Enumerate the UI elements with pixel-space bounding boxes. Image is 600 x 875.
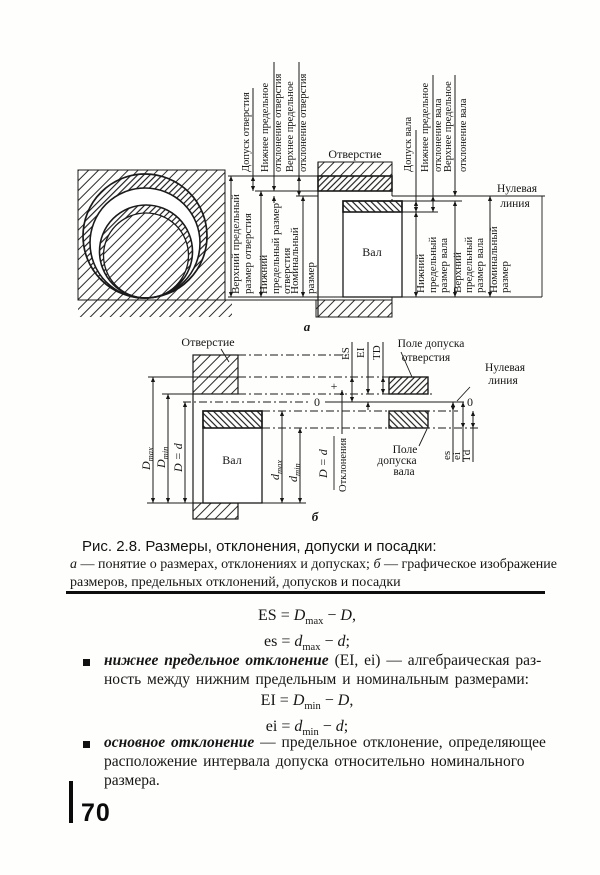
bullet-2-line-3: размера. — [104, 772, 160, 790]
label-hole-lower-dev-1: Нижнее предельное — [260, 83, 271, 172]
shaft-label: Вал — [362, 245, 381, 259]
book-page: Допуск отверстия Нижнее предельное откло… — [0, 0, 600, 875]
hole-tolerance-strip — [318, 176, 392, 191]
shaft-label: Вал — [222, 453, 241, 467]
hole-wall — [318, 162, 392, 176]
dim-D-max: Dmax — [139, 447, 155, 471]
label-shaft-upper-dev-2: отклонение вала — [458, 98, 469, 172]
fig-a-side-view — [318, 162, 402, 317]
formula-block-upper-deviation: ES = Dmax − D, es = dmax − d; — [70, 606, 544, 658]
hole-field-label-1: Поле допуска — [398, 338, 465, 350]
label-hole-upper-dev-2: отклонение отверстия — [298, 74, 309, 172]
dim-D-min: Dmin — [154, 447, 170, 469]
null-line-label-1: Нулевая — [485, 362, 526, 374]
legend-b: б — [373, 557, 380, 572]
label-hole-tolerance: Допуск отверстия — [241, 92, 252, 172]
margin-mark — [69, 781, 73, 823]
null-line-label-2: линия — [488, 375, 518, 387]
label-shaft-lower-dev-1: Нижнее предельное — [420, 83, 431, 172]
hole-tolerance-field — [389, 377, 428, 394]
bullet-2-line-1: основное отклонение — предельное отклоне… — [104, 734, 546, 752]
null-line-label-2: линия — [500, 198, 530, 210]
shaft-tolerance-field — [389, 411, 428, 428]
figure-legend-line-2: размеров, предельных отклонений, допуско… — [70, 575, 401, 591]
zero-left: 0 — [314, 395, 320, 409]
hole-field-label-2: отверстия — [402, 352, 451, 364]
dim-Td: Td — [461, 449, 473, 462]
label-hole-upper-size-1: Верхний предельный — [230, 194, 242, 294]
bottom-block — [193, 503, 238, 519]
figure-2-8-diagrams: Допуск отверстия Нижнее предельное откло… — [0, 0, 600, 535]
label-shaft-lower-size-3: размер вала — [438, 238, 450, 293]
dim-d-max: dmax — [268, 460, 284, 480]
label-hole-upper-size-2: размер отверстия — [242, 213, 254, 294]
dim-ES: ES — [340, 347, 352, 360]
null-line-label-1: Нулевая — [497, 183, 538, 195]
label-shaft-upper-size-3: размер вала — [474, 238, 486, 293]
bullet-1-line-1: нижнее предельное отклонение (EI, ei) — … — [104, 652, 541, 670]
dim-D-equals-d: D = d — [171, 442, 185, 473]
label-hole-lower-size-1: Нижний — [258, 255, 270, 294]
dim-EI: EI — [355, 347, 367, 358]
label-nominal-size-2: размер — [305, 262, 317, 294]
bullet-2-line-2: расположение интервала допуска относител… — [104, 753, 524, 771]
figure-b: Отверстие Вал Dmax Dmin D = d dmax dmin … — [139, 335, 526, 524]
label-shaft-upper-dev-1: Верхнее предельное — [443, 81, 454, 172]
axis-label-numerator: D = d — [316, 448, 330, 479]
legend-a: а — [70, 557, 77, 572]
subfigure-a-tag: а — [304, 319, 311, 334]
label-nominal-size-shaft-2: размер — [499, 261, 511, 293]
section-divider — [66, 591, 545, 594]
shaft-tolerance-strip — [343, 201, 402, 212]
label-shaft-tolerance: Допуск вала — [403, 117, 414, 172]
fig-b-geometry — [193, 349, 470, 519]
formula-ES: ES = Dmax − D, — [70, 606, 544, 632]
shaft-tolerance-strip — [203, 411, 262, 428]
hole-block — [193, 355, 238, 394]
plus-sign: + — [331, 379, 338, 393]
page-number: 70 — [81, 799, 111, 828]
figure-legend-line-1: а — понятие о размерах, отклонениях и до… — [70, 557, 557, 573]
bullet-square-icon — [83, 741, 90, 748]
label-hole-lower-dev-2: отклонение отверстия — [273, 74, 284, 172]
bullet-square-icon — [83, 659, 90, 666]
bullet-1-line-2: ность между нижним предельным и номиналь… — [104, 671, 529, 689]
formula-EI: EI = Dmin − D, — [70, 691, 544, 717]
figure-a: Допуск отверстия Нижнее предельное откло… — [78, 62, 545, 334]
label-hole-upper-dev-1: Верхнее предельное — [285, 81, 296, 172]
hole-label: Отверстие — [328, 147, 381, 161]
figure-caption: Рис. 2.8. Размеры, отклонения, допуски и… — [82, 538, 437, 555]
label-shaft-lower-size-1: Нижний — [415, 254, 427, 293]
shaft-field-label-3: вала — [393, 466, 414, 478]
shaft-field-leader — [419, 429, 427, 446]
subfigure-b-tag: б — [312, 509, 319, 524]
axis-label-denominator: Отклонения — [338, 438, 349, 492]
dim-d-min: dmin — [286, 463, 302, 482]
label-nominal-size-1: Номинальный — [289, 227, 301, 294]
dim-TD: TD — [371, 345, 383, 360]
hole-label: Отверстие — [181, 335, 234, 349]
zero-right: 0 — [467, 395, 473, 409]
